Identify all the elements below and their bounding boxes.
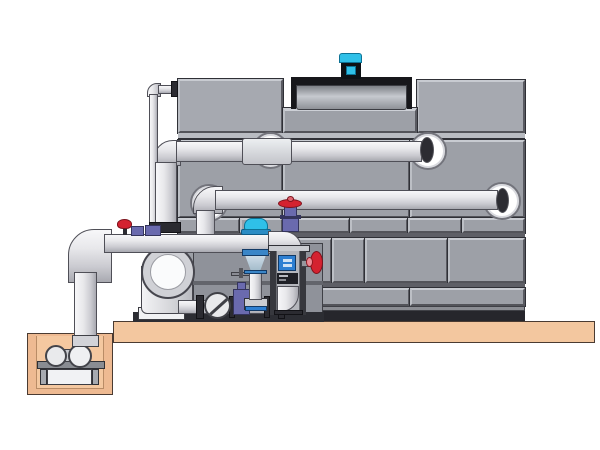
frame-post-left bbox=[270, 251, 276, 315]
pit-pump-stand-recess bbox=[47, 369, 92, 385]
module-mark bbox=[283, 264, 292, 267]
fan-cowl-cylinder bbox=[296, 85, 407, 110]
tower-panel bbox=[410, 288, 525, 306]
tower-band-panel bbox=[350, 218, 408, 233]
fan-motor-cap bbox=[339, 53, 362, 63]
fan-shroud-lip-right bbox=[407, 77, 412, 109]
manifold-fitting bbox=[145, 225, 161, 236]
actuator-cap bbox=[244, 218, 268, 230]
pit-pump-motor bbox=[45, 345, 67, 367]
run-flange bbox=[196, 295, 204, 319]
tower-top-seam bbox=[178, 133, 525, 140]
pit-pump-stand-leg-left bbox=[40, 369, 47, 385]
check-valve bbox=[204, 292, 231, 319]
supply-pipe-tower-inlet bbox=[420, 137, 434, 163]
side-valve-hub bbox=[306, 257, 313, 267]
module-mark bbox=[283, 259, 292, 262]
isolation-valve-body bbox=[282, 218, 299, 232]
makeup-line-stub bbox=[158, 85, 172, 94]
frame-blue-module bbox=[278, 255, 296, 271]
tower-mid-top-face bbox=[283, 108, 417, 133]
tower-band-panel bbox=[462, 218, 525, 233]
fan-motor-window bbox=[346, 66, 356, 75]
tower-band-panel bbox=[408, 218, 462, 233]
tower-panel bbox=[448, 238, 525, 283]
tower-panel bbox=[365, 238, 448, 283]
tower-panel bbox=[332, 238, 365, 283]
pit-pipe-coupling bbox=[72, 335, 99, 347]
tap-valve-stem bbox=[123, 228, 127, 235]
isolation-valve-hub bbox=[287, 196, 294, 202]
riser-pipe bbox=[155, 162, 177, 223]
diagram-stage bbox=[0, 0, 600, 450]
return-pipe-tower-outlet bbox=[496, 188, 509, 213]
module-tick bbox=[279, 279, 286, 281]
foundation-slab bbox=[113, 321, 595, 343]
control-valve-drop-pipe bbox=[249, 271, 262, 300]
tap-valve-handle bbox=[117, 219, 132, 229]
pit-pump-stand-leg-right bbox=[92, 369, 99, 385]
supply-pipe bbox=[176, 141, 422, 162]
supply-pipe-collar bbox=[242, 138, 292, 165]
tower-top-left-block bbox=[178, 79, 283, 133]
manifold-riser-to-pit bbox=[74, 272, 97, 342]
control-valve-flange-bottom bbox=[244, 270, 267, 274]
return-pipe bbox=[215, 190, 498, 210]
module-tick bbox=[279, 275, 288, 277]
pit-pump-casing bbox=[68, 344, 92, 368]
pump-inlet-face bbox=[150, 254, 186, 290]
frame-dark-module bbox=[277, 273, 298, 284]
frame-elbow-flange bbox=[274, 310, 303, 315]
control-valve-flange-top bbox=[242, 249, 269, 256]
makeup-line-flange bbox=[171, 81, 178, 97]
control-valve-base-plate bbox=[245, 306, 267, 311]
tower-top-right-block bbox=[417, 80, 525, 133]
gate-valve-stem bbox=[239, 268, 243, 278]
manifold-fitting bbox=[131, 226, 144, 236]
